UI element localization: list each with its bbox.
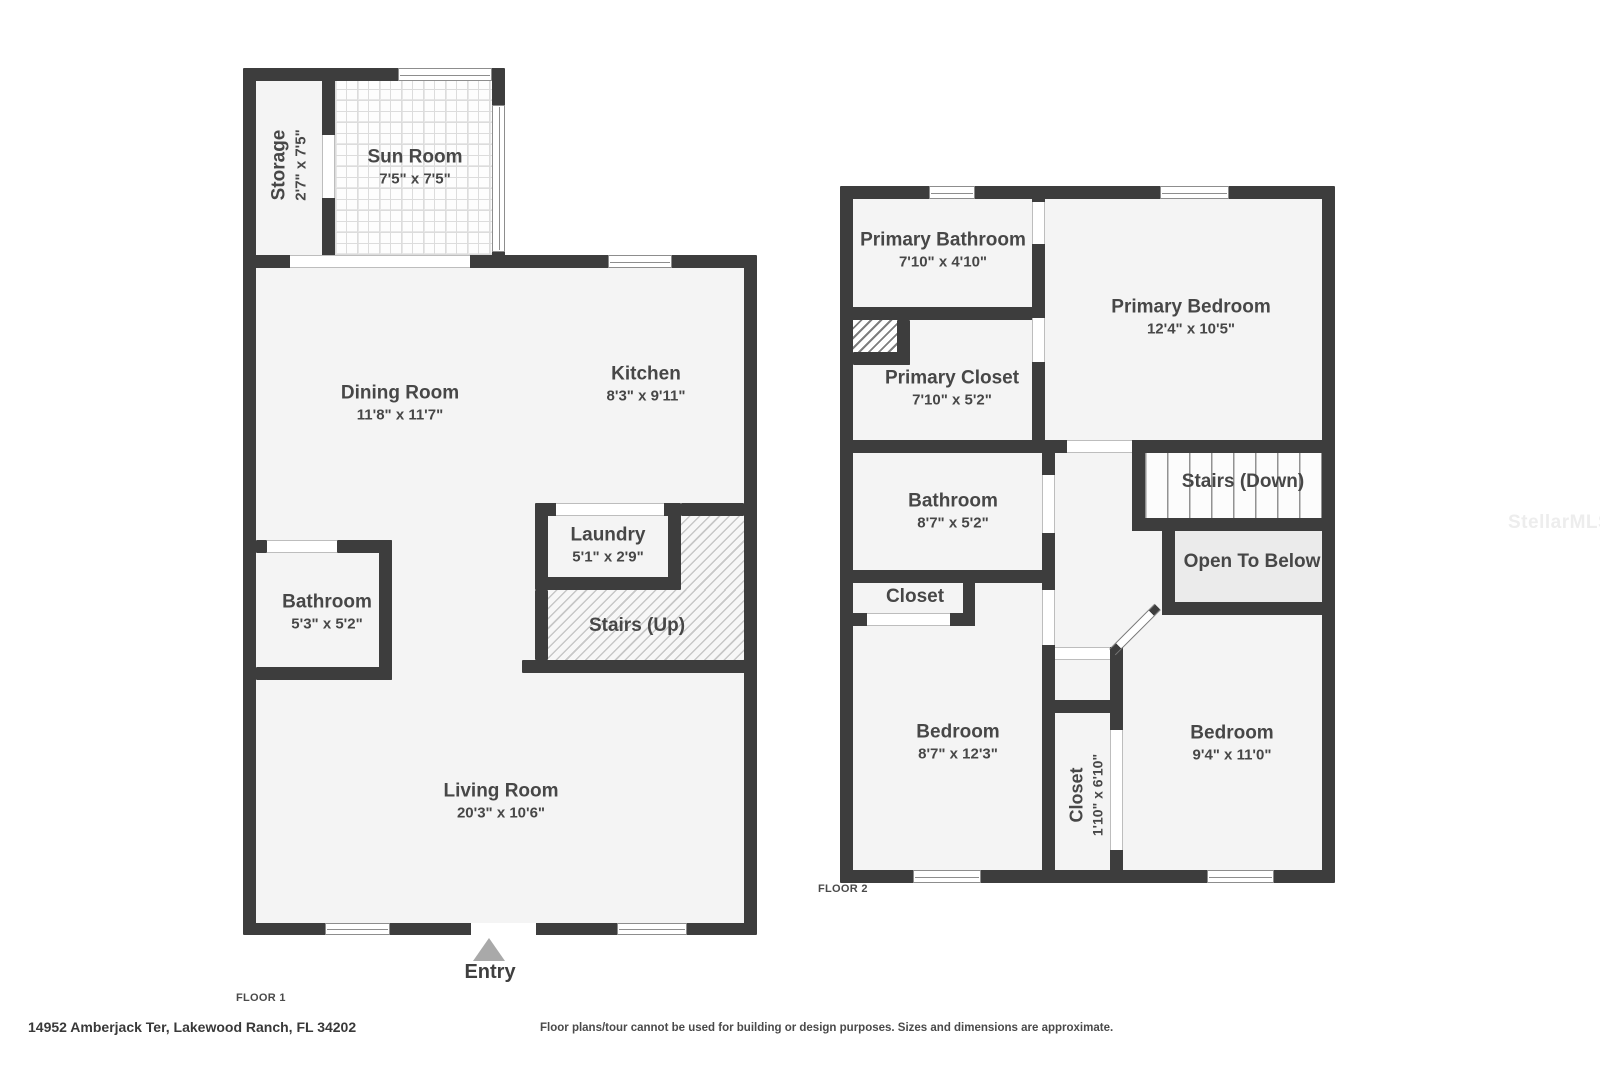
room-name: Dining Room [341,382,459,404]
primary-closet-door [1032,318,1045,362]
room-name: Laundry [571,524,646,546]
room-label-sun-room: Sun Room 7'5" x 7'5" [368,146,463,187]
room-dims: 20'3" x 10'6" [443,804,558,821]
room-name: Bedroom [916,721,999,743]
room-name: Kitchen [607,363,686,385]
room-label-closet-small: Closet [886,586,944,608]
room-dims: 7'10" x 4'10" [860,253,1026,270]
room-label-bedroom-left: Bedroom 8'7" x 12'3" [916,721,999,762]
room-label-bathroom2: Bathroom 8'7" x 5'2" [908,490,998,531]
room-label-primary-bathroom: Primary Bathroom 7'10" x 4'10" [860,229,1026,270]
room-dims: 8'7" x 5'2" [908,514,998,531]
laundry-opening [556,503,664,516]
property-address: 14952 Amberjack Ter, Lakewood Ranch, FL … [28,1019,356,1035]
room-label-living-room: Living Room 20'3" x 10'6" [443,780,558,821]
room-label-stairs-down: Stairs (Down) [1182,471,1304,493]
hallway-floor [1055,453,1132,647]
room-name: Primary Bathroom [860,229,1026,251]
bedroom-right-window [1207,870,1274,883]
sun-room-right-window [492,105,505,252]
wall [256,667,392,680]
room-dims: 2'7" x 7'5" [292,129,309,200]
floor1-tag: FLOOR 1 [236,992,286,1004]
room-name: Sun Room [368,146,463,168]
room-label-stairs-up: Stairs (Up) [589,615,685,637]
room-name: Living Room [443,780,558,802]
room-dims: 5'1" x 2'9" [571,548,646,565]
chase-hatch [853,320,897,352]
room-label-storage: Storage 2'7" x 7'5" [268,129,309,200]
room-label-laundry: Laundry 5'1" x 2'9" [571,524,646,565]
room-label-kitchen: Kitchen 8'3" x 9'11" [607,363,686,404]
wall [522,660,757,673]
primary-bathroom-window [929,186,975,199]
room-label-primary-bedroom: Primary Bedroom 12'4" x 10'5" [1111,296,1270,337]
room-label-open-to-below: Open To Below [1184,551,1321,573]
entry-arrow-icon [473,938,505,961]
bedroom-left-door [1042,590,1055,645]
entry-door-opening [471,923,536,935]
stairs-up-area [681,516,744,590]
living-room-window-right [617,923,687,935]
room-name: Bedroom [1190,722,1273,744]
room-label-closet-center: Closet 1'10" x 6'10" [1067,754,1106,836]
room-name: Stairs (Down) [1182,471,1304,493]
room-label-bedroom-right: Bedroom 9'4" x 11'0" [1190,722,1273,763]
room-dims: 11'8" x 11'7" [341,406,459,423]
room-name: Bathroom [908,490,998,512]
stellar-mls-watermark: StellarMLS [1508,512,1600,534]
room-dims: 9'4" x 11'0" [1190,746,1273,763]
primary-bathroom-door [1032,202,1045,244]
room-label-dining-room: Dining Room 11'8" x 11'7" [341,382,459,423]
entry-label: Entry [464,961,515,984]
room-name: Bathroom [282,591,372,613]
primary-bedroom-window [1160,186,1229,199]
wall [535,590,548,660]
bedroom-left-nook-floor [975,583,1042,626]
room-name: Primary Closet [885,367,1019,389]
wall [256,540,267,553]
storage-door-opening [322,135,335,198]
room-dims: 7'10" x 5'2" [885,391,1019,408]
primary-bedroom-door [1067,440,1132,453]
floor2-tag: FLOOR 2 [818,883,868,895]
room-name: Storage [268,129,290,200]
wall [681,503,744,516]
living-room-window-left [325,923,390,935]
room-label-bathroom1: Bathroom 5'3" x 5'2" [282,591,372,632]
bedroom-left-window [913,870,981,883]
room-name: Stairs (Up) [589,615,685,637]
bathroom2-door [1042,475,1055,533]
bathroom1-door-opening [267,540,337,553]
closet-small-door [867,613,950,626]
wall [379,540,392,680]
room-name: Closet [886,586,944,608]
room-dims: 1'10" x 6'10" [1089,754,1105,836]
room-dims: 12'4" x 10'5" [1111,320,1270,337]
room-dims: 8'3" x 9'11" [607,387,686,404]
room-dims: 8'7" x 12'3" [916,745,999,762]
disclaimer-text: Floor plans/tour cannot be used for buil… [540,1022,1113,1034]
closet-center-door [1110,730,1123,850]
room-label-primary-closet: Primary Closet 7'10" x 5'2" [885,367,1019,408]
floor-plan-canvas: Storage 2'7" x 7'5" Sun Room 7'5" x 7'5"… [0,0,1600,1066]
room-name: Primary Bedroom [1111,296,1270,318]
room-dims: 7'5" x 7'5" [368,170,463,187]
sun-room-opening [290,255,470,268]
room-name: Closet [1067,754,1088,836]
vestibule-door [1055,647,1110,660]
room-dims: 5'3" x 5'2" [282,615,372,632]
room-name: Open To Below [1184,551,1321,573]
kitchen-window [608,255,672,268]
sun-room-top-window [398,68,492,81]
wall [853,352,910,365]
